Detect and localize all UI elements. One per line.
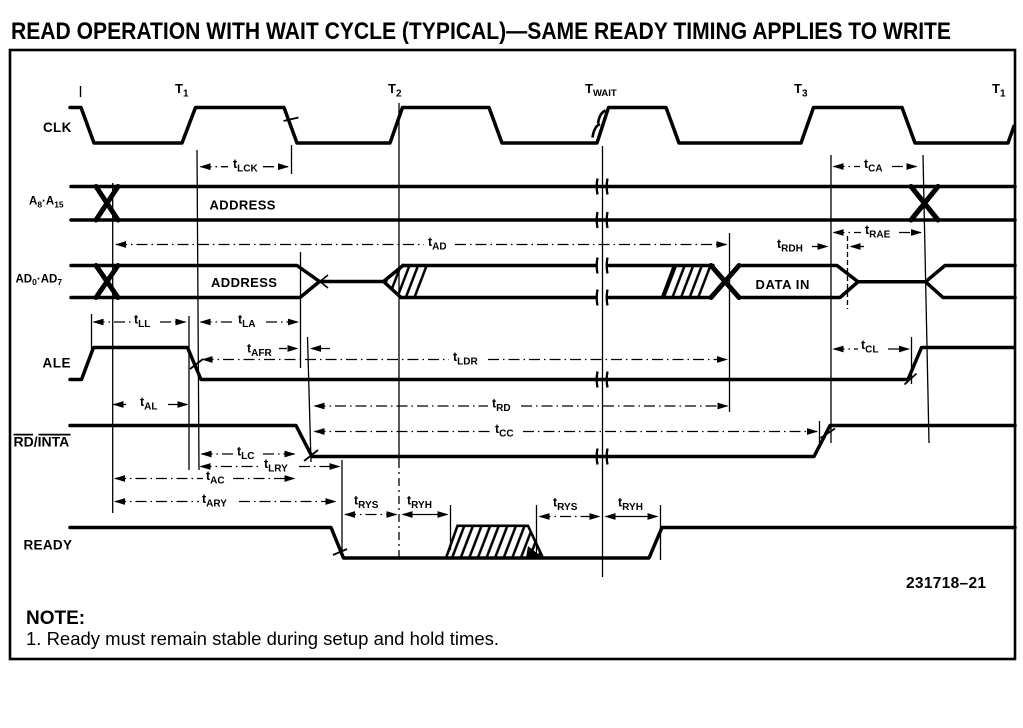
svg-text:1. Ready must remain stable du: 1. Ready must remain stable during setup…	[26, 628, 499, 649]
svg-text:ALE: ALE	[43, 356, 72, 371]
svg-text:RD/INTA: RD/INTA	[14, 434, 70, 450]
svg-text:READ OPERATION WITH WAIT CYCLE: READ OPERATION WITH WAIT CYCLE (TYPICAL)…	[11, 18, 951, 45]
svg-text:CLK: CLK	[43, 120, 72, 135]
svg-text:AD0·AD7: AD0·AD7	[16, 273, 63, 287]
svg-text:NOTE:: NOTE:	[26, 608, 85, 629]
svg-text:ADDRESS: ADDRESS	[211, 275, 277, 290]
svg-text:DATA IN: DATA IN	[756, 277, 811, 292]
svg-text:ADDRESS: ADDRESS	[210, 198, 276, 213]
svg-text:231718–21: 231718–21	[906, 575, 986, 592]
svg-text:READY: READY	[24, 538, 73, 553]
